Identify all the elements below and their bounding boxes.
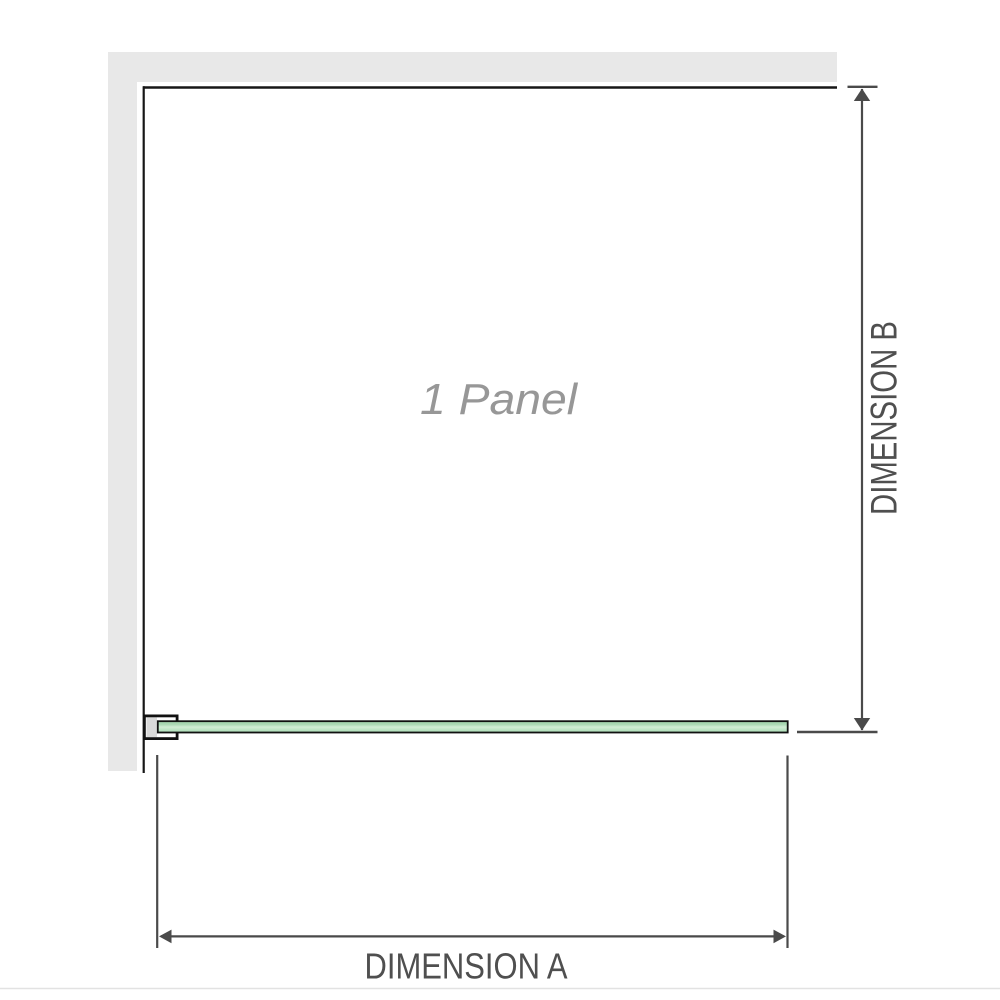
svg-text:DIMENSION A: DIMENSION A <box>365 946 568 987</box>
svg-text:DIMENSION B: DIMENSION B <box>864 321 905 515</box>
svg-text:1 Panel: 1 Panel <box>420 375 578 424</box>
